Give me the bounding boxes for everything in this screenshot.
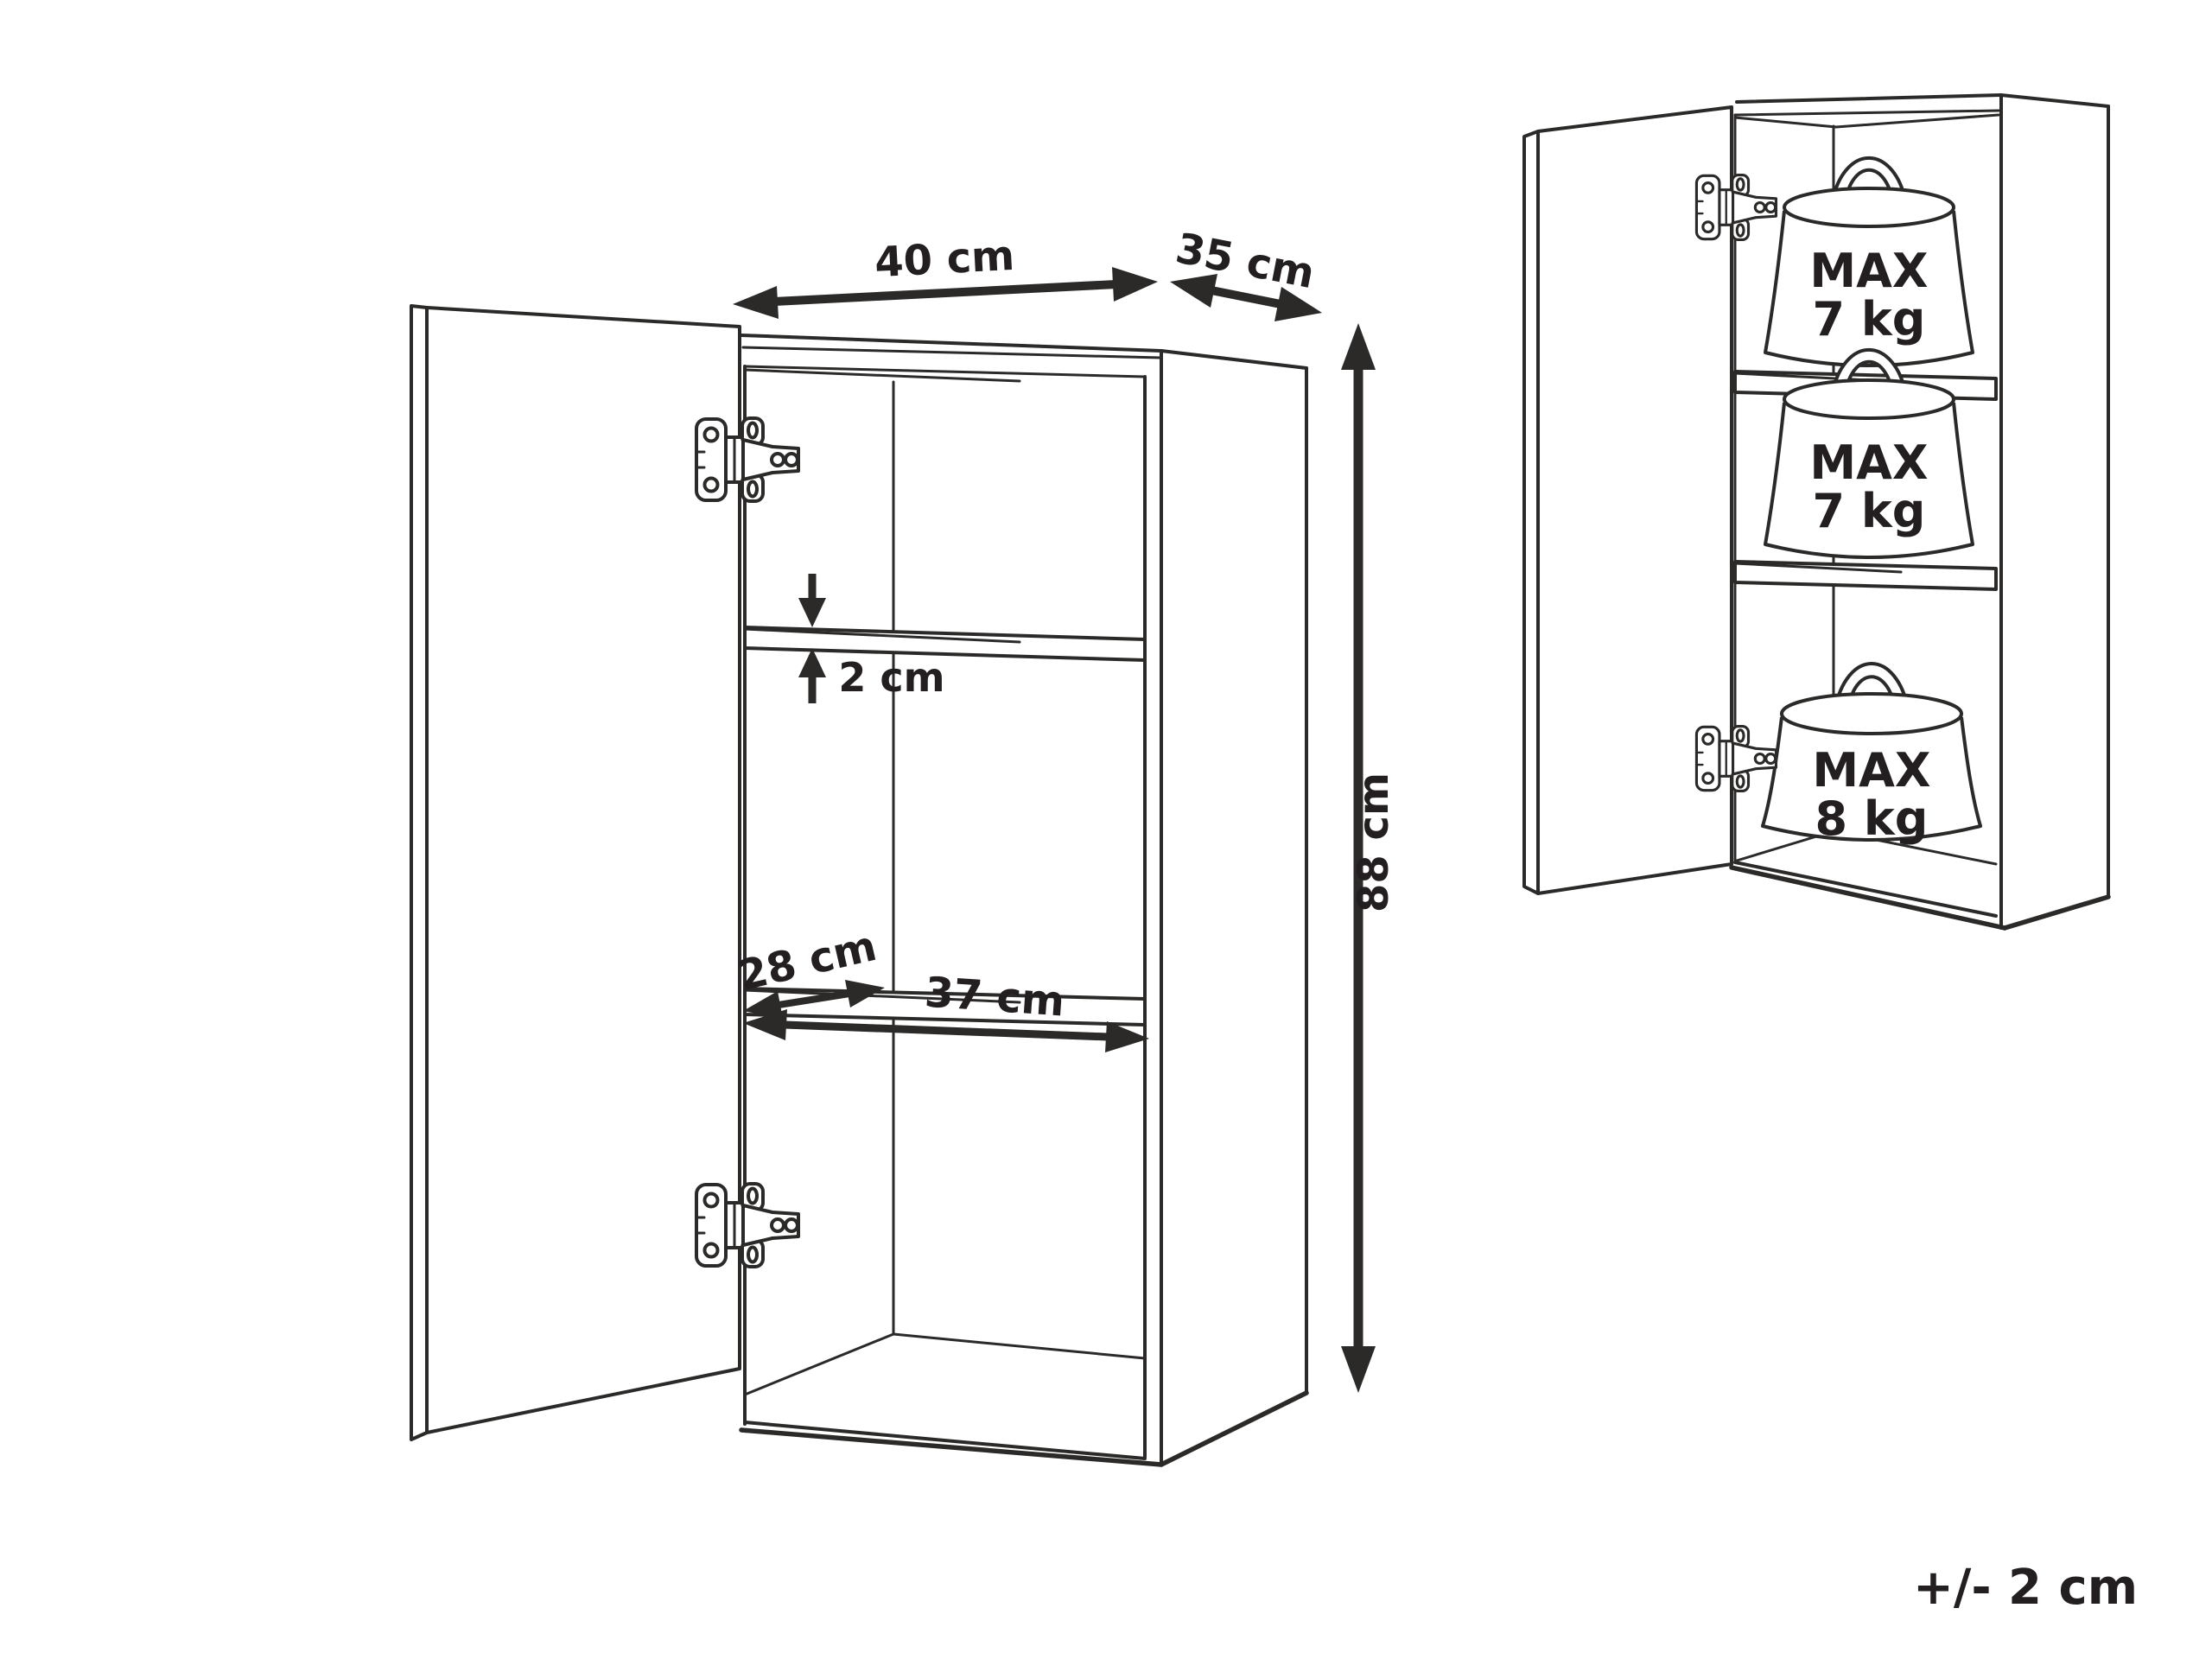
load-front-top-edge — [1737, 95, 2001, 102]
shelf-thickness-arrow-up-head — [798, 648, 826, 677]
tolerance-note: +/- 2 cm — [1913, 1560, 2138, 1616]
shelf-thickness-arrow-down-head — [798, 598, 826, 627]
weight-top-icon: MAX 7 kg — [1765, 158, 1973, 365]
max-load-middle-value: 7 kg — [1813, 484, 1926, 538]
width-dimension-label: 40 cm — [874, 232, 1016, 287]
side-panel-top-edge — [1161, 351, 1306, 368]
door-front-panel — [427, 308, 740, 1433]
load-interior-bottom-front-edge — [1735, 862, 1996, 916]
depth-arrow-shaft — [1211, 290, 1281, 304]
height-arrow-head-top — [1341, 323, 1376, 370]
width-arrow-shaft — [774, 284, 1116, 302]
width-arrow-head-right — [1112, 267, 1158, 302]
load-back-top-edge — [2001, 95, 2108, 106]
side-panel-bottom-edge — [1161, 1393, 1306, 1465]
max-load-bottom-label: MAX — [1812, 743, 1930, 798]
load-side-panel-bottom-edge — [2005, 897, 2108, 928]
cabinet-door — [411, 306, 740, 1440]
load-door-edge-strip — [1524, 131, 1538, 893]
cabinet-diagram-canvas: 40 cm 35 cm 88 cm 2 cm — [0, 0, 2212, 1659]
weight-bottom-icon: MAX 8 kg — [1763, 664, 1980, 846]
cabinet-body — [741, 335, 1306, 1465]
max-load-top-label: MAX — [1809, 244, 1928, 298]
width-arrow-head-left — [733, 286, 779, 319]
height-arrow-head-bottom — [1341, 1346, 1376, 1393]
load-hinge-top-icon — [1696, 175, 1776, 240]
width-dimension: 40 cm — [733, 232, 1158, 319]
load-capacity-view: MAX 7 kg MAX 7 kg MAX 8 kg — [1524, 95, 2108, 928]
shelf-width-arrow-shaft — [785, 1025, 1108, 1037]
load-hinge-bottom-icon — [1696, 727, 1776, 791]
load-interior-top-wedge-line — [1735, 115, 1999, 127]
dimension-view: 40 cm 35 cm 88 cm 2 cm — [411, 224, 1398, 1465]
floor-back-edge — [893, 1334, 1145, 1358]
load-shelf-lower — [1735, 562, 1996, 589]
max-load-bottom-value: 8 kg — [1815, 791, 1929, 846]
height-dimension-label: 88 cm — [1350, 772, 1398, 912]
hinge-bottom-icon — [696, 1184, 798, 1267]
max-load-middle-label: MAX — [1809, 435, 1928, 490]
diagram-page: 40 cm 35 cm 88 cm 2 cm — [0, 0, 2212, 1659]
door-edge-strip — [411, 306, 427, 1440]
hinge-top-icon — [696, 418, 798, 501]
interior-bottom-front-edge — [745, 1422, 1145, 1459]
bottom-outer-edge — [741, 1430, 1161, 1465]
shelf-thickness-label: 2 cm — [838, 654, 944, 701]
floor-diagonal-line — [745, 1334, 893, 1395]
load-bottom-outer-edge — [1732, 868, 2005, 928]
max-load-top-value: 7 kg — [1813, 292, 1926, 346]
load-interior-top-edge — [1735, 111, 1999, 115]
shelf-width-label: 37 cm — [923, 968, 1065, 1026]
height-dimension: 88 cm — [1341, 323, 1398, 1393]
depth-dimension: 35 cm — [1170, 224, 1322, 321]
